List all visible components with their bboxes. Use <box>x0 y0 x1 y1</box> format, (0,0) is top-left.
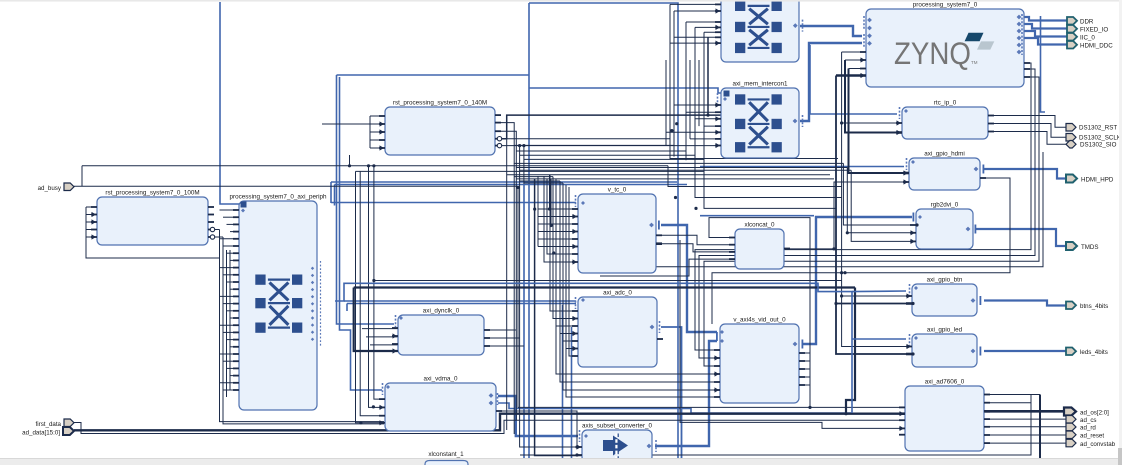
svg-text:IIC_0: IIC_0 <box>1080 35 1095 42</box>
svg-text:v_tc_0: v_tc_0 <box>608 187 627 194</box>
svg-text:axi_gpio_hdmi: axi_gpio_hdmi <box>924 151 965 158</box>
svg-text:rgb2dvi_0: rgb2dvi_0 <box>931 202 959 209</box>
svg-text:TM: TM <box>971 60 978 65</box>
svg-text:leds_4bits: leds_4bits <box>1080 349 1108 356</box>
svg-text:ad_data[15:0]: ad_data[15:0] <box>22 430 60 437</box>
svg-text:btns_4bits: btns_4bits <box>1080 303 1108 310</box>
svg-text:axi_adc_0: axi_adc_0 <box>603 290 632 297</box>
svg-text:xlconcat_0: xlconcat_0 <box>744 222 775 229</box>
svg-text:axi_vdma_0: axi_vdma_0 <box>424 376 458 383</box>
svg-text:DS1302_SIO: DS1302_SIO <box>1080 142 1117 149</box>
svg-text:FIXED_IO: FIXED_IO <box>1080 27 1108 34</box>
svg-text:rst_processing_system7_0_100M: rst_processing_system7_0_100M <box>105 190 199 197</box>
svg-text:DDR: DDR <box>1080 19 1094 26</box>
svg-text:processing_system7_0: processing_system7_0 <box>913 2 978 9</box>
svg-text:ZYNQ: ZYNQ <box>894 35 971 71</box>
svg-text:DS1302_RST: DS1302_RST <box>1079 125 1117 132</box>
svg-text:axi_gpio_btn: axi_gpio_btn <box>927 277 963 284</box>
svg-text:axi_dynclk_0: axi_dynclk_0 <box>423 308 460 315</box>
svg-text:rst_processing_system7_0_140M: rst_processing_system7_0_140M <box>393 100 487 107</box>
svg-text:axi_mem_intercon1: axi_mem_intercon1 <box>733 81 788 88</box>
svg-text:axi_ad7606_0: axi_ad7606_0 <box>925 379 965 386</box>
svg-text:ad_rd: ad_rd <box>1080 425 1096 432</box>
svg-text:DS1302_SCLK: DS1302_SCLK <box>1079 135 1122 142</box>
svg-text:HDMI_DDC: HDMI_DDC <box>1080 43 1113 50</box>
svg-text:xlconstant_1: xlconstant_1 <box>428 451 464 458</box>
svg-text:axi_gpio_led: axi_gpio_led <box>927 327 963 334</box>
svg-text:TMDS: TMDS <box>1081 244 1099 251</box>
svg-text:ad_busy: ad_busy <box>38 185 62 192</box>
svg-text:processing_system7_0_axi_perip: processing_system7_0_axi_periph <box>230 194 327 201</box>
svg-text:ad_cs: ad_cs <box>1080 417 1097 424</box>
svg-text:v_axi4s_vid_out_0: v_axi4s_vid_out_0 <box>733 317 786 324</box>
svg-text:first_data: first_data <box>36 421 62 428</box>
svg-text:HDMI_HPD: HDMI_HPD <box>1081 177 1114 184</box>
svg-text:axis_subset_converter_0: axis_subset_converter_0 <box>582 423 653 430</box>
svg-text:ad_convstab: ad_convstab <box>1080 441 1116 448</box>
svg-text:ad_reset: ad_reset <box>1080 433 1104 440</box>
svg-text:rtc_ip_0: rtc_ip_0 <box>934 100 957 107</box>
svg-text:ad_os[2:0]: ad_os[2:0] <box>1080 410 1109 417</box>
